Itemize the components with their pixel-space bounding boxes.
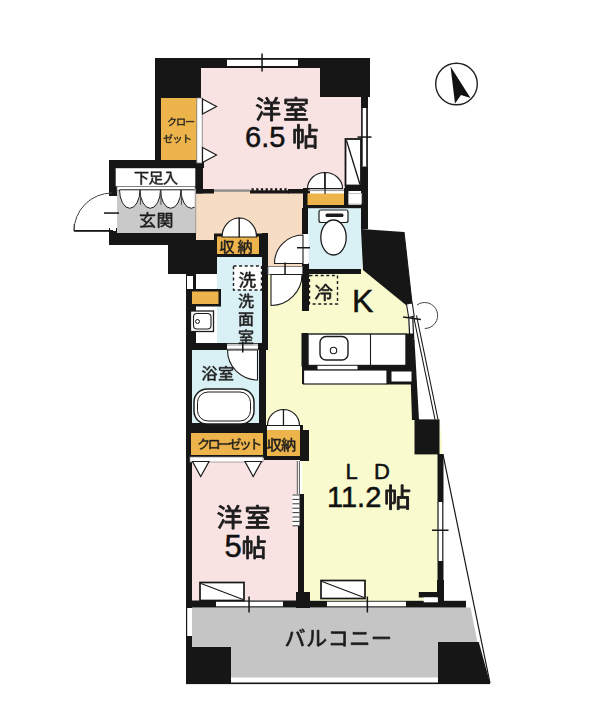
- svg-text:5: 5: [225, 529, 242, 564]
- svg-text:6.5: 6.5: [245, 121, 285, 153]
- svg-text:K: K: [352, 283, 373, 319]
- svg-text:L: L: [346, 459, 358, 484]
- svg-text:11.2: 11.2: [327, 481, 381, 513]
- svg-text:D: D: [374, 459, 390, 484]
